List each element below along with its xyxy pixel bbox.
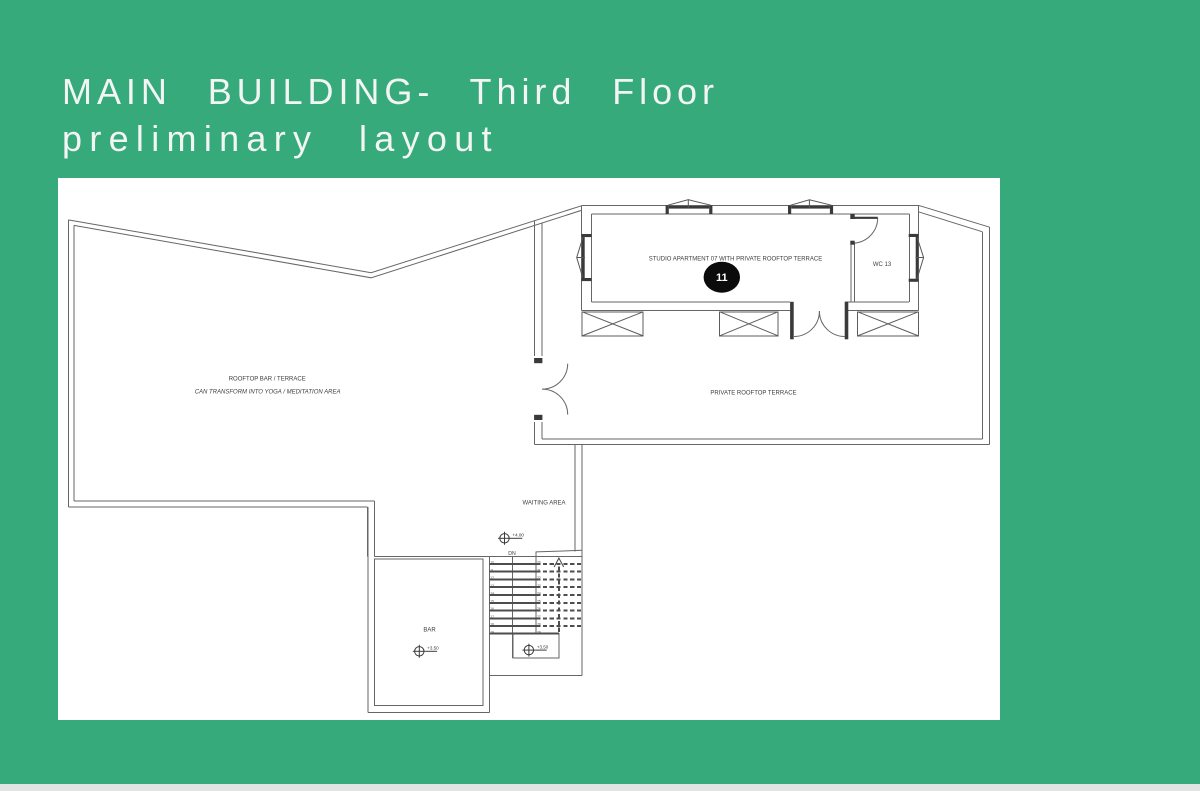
svg-text:STUDIO APARTMENT 07 WITH PRIVA: STUDIO APARTMENT 07 WITH PRIVATE ROOFTOP… <box>648 256 821 262</box>
svg-text:20: 20 <box>537 560 541 564</box>
svg-text:25: 25 <box>537 599 541 603</box>
svg-text:11: 11 <box>490 568 494 572</box>
svg-text:17: 17 <box>490 614 494 618</box>
svg-text:14: 14 <box>490 591 494 595</box>
svg-text:PRIVATE ROOFTOP TERRACE: PRIVATE ROOFTOP TERRACE <box>710 390 796 396</box>
svg-text:DN: DN <box>508 551 516 557</box>
svg-text:11: 11 <box>715 272 727 284</box>
svg-text:27: 27 <box>537 614 541 618</box>
svg-text:15: 15 <box>490 599 494 603</box>
svg-text:13: 13 <box>490 583 494 587</box>
svg-text:21: 21 <box>537 568 541 572</box>
svg-text:16: 16 <box>490 607 494 611</box>
svg-text:10: 10 <box>490 560 494 564</box>
svg-text:CAN TRANSFORM INTO YOGA / MEDI: CAN TRANSFORM INTO YOGA / MEDITATION ARE… <box>194 389 340 395</box>
svg-text:+3.50: +3.50 <box>536 644 548 649</box>
svg-text:+3.50: +3.50 <box>427 645 439 650</box>
svg-text:23: 23 <box>537 583 541 587</box>
svg-text:ROOFTOP BAR / TERRACE: ROOFTOP BAR / TERRACE <box>228 376 305 382</box>
svg-text:+4.00: +4.00 <box>512 532 524 537</box>
svg-text:WC 13: WC 13 <box>872 262 891 268</box>
svg-text:WAITING AREA: WAITING AREA <box>522 500 565 506</box>
svg-text:12: 12 <box>490 576 494 580</box>
svg-text:19: 19 <box>490 630 494 634</box>
svg-text:18: 18 <box>490 622 494 626</box>
svg-text:28: 28 <box>537 622 541 626</box>
svg-text:BAR: BAR <box>423 627 436 633</box>
svg-text:26: 26 <box>537 607 541 611</box>
svg-text:24: 24 <box>537 591 541 595</box>
svg-text:29: 29 <box>537 630 541 634</box>
svg-text:22: 22 <box>537 576 541 580</box>
